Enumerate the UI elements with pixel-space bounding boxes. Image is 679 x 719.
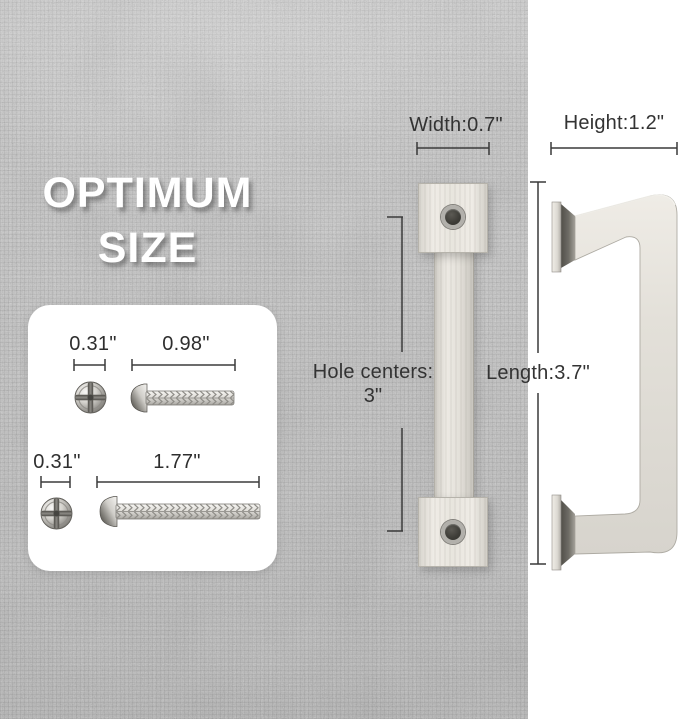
handle-side-view-bottom-plate	[552, 495, 561, 570]
height-dimension-line	[550, 140, 678, 156]
width-dimension-label: Width:0.7"	[394, 114, 518, 137]
phillips-screw-head-icon	[74, 381, 107, 414]
screw2-head-diameter-label: 0.31"	[28, 451, 86, 474]
hole-centers-label: Hole centers: 3"	[306, 360, 440, 408]
screw2-length-label: 1.77"	[142, 451, 212, 474]
width-dimension-line	[416, 140, 490, 156]
screw1-head-dimension-bracket	[73, 357, 106, 373]
phillips-screw-head-icon	[40, 497, 73, 530]
hole-centers-label-line1: Hole centers:	[306, 360, 440, 384]
screw2-head-dimension-bracket	[40, 474, 71, 490]
handle-side-view-top-plate	[552, 202, 561, 272]
handle-top-screw-hole	[441, 205, 465, 229]
headline-line2: SIZE	[30, 221, 265, 276]
headline-line1: OPTIMUM	[30, 166, 265, 221]
screw2-length-dimension-bracket	[96, 474, 260, 490]
handle-side-view	[540, 175, 679, 575]
product-infographic: OPTIMUM SIZE 0.31" 0.98"	[0, 0, 679, 719]
screw-size-card: 0.31" 0.98"	[28, 305, 277, 571]
headline: OPTIMUM SIZE	[30, 166, 265, 276]
short-screw-icon	[130, 383, 236, 413]
handle-bottom-screw-hole	[441, 520, 465, 544]
handle-side-view-c-body	[575, 195, 677, 554]
hole-centers-label-line2: 3"	[306, 384, 440, 408]
handle-side-view-bottom-neck	[561, 500, 575, 566]
screw1-length-label: 0.98"	[151, 333, 221, 356]
long-screw-icon	[99, 495, 262, 528]
screw1-length-dimension-bracket	[131, 357, 236, 373]
handle-front-view-bar	[434, 250, 474, 500]
screw1-head-diameter-label: 0.31"	[58, 333, 128, 356]
handle-side-view-top-neck	[561, 204, 575, 268]
height-dimension-label: Height:1.2"	[551, 112, 677, 135]
